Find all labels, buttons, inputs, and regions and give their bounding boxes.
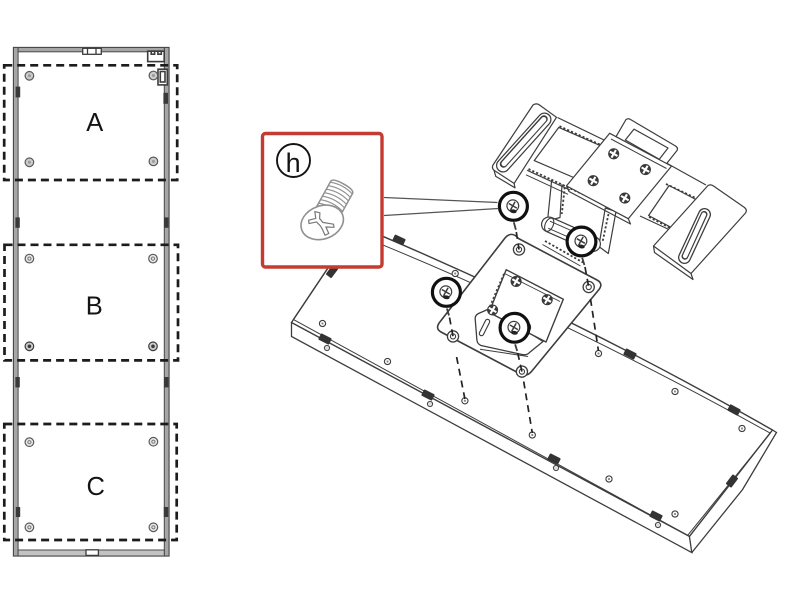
svg-text:B: B — [86, 293, 103, 321]
svg-text:C: C — [86, 473, 104, 501]
svg-text:A: A — [86, 109, 103, 137]
svg-text:h: h — [286, 148, 301, 178]
